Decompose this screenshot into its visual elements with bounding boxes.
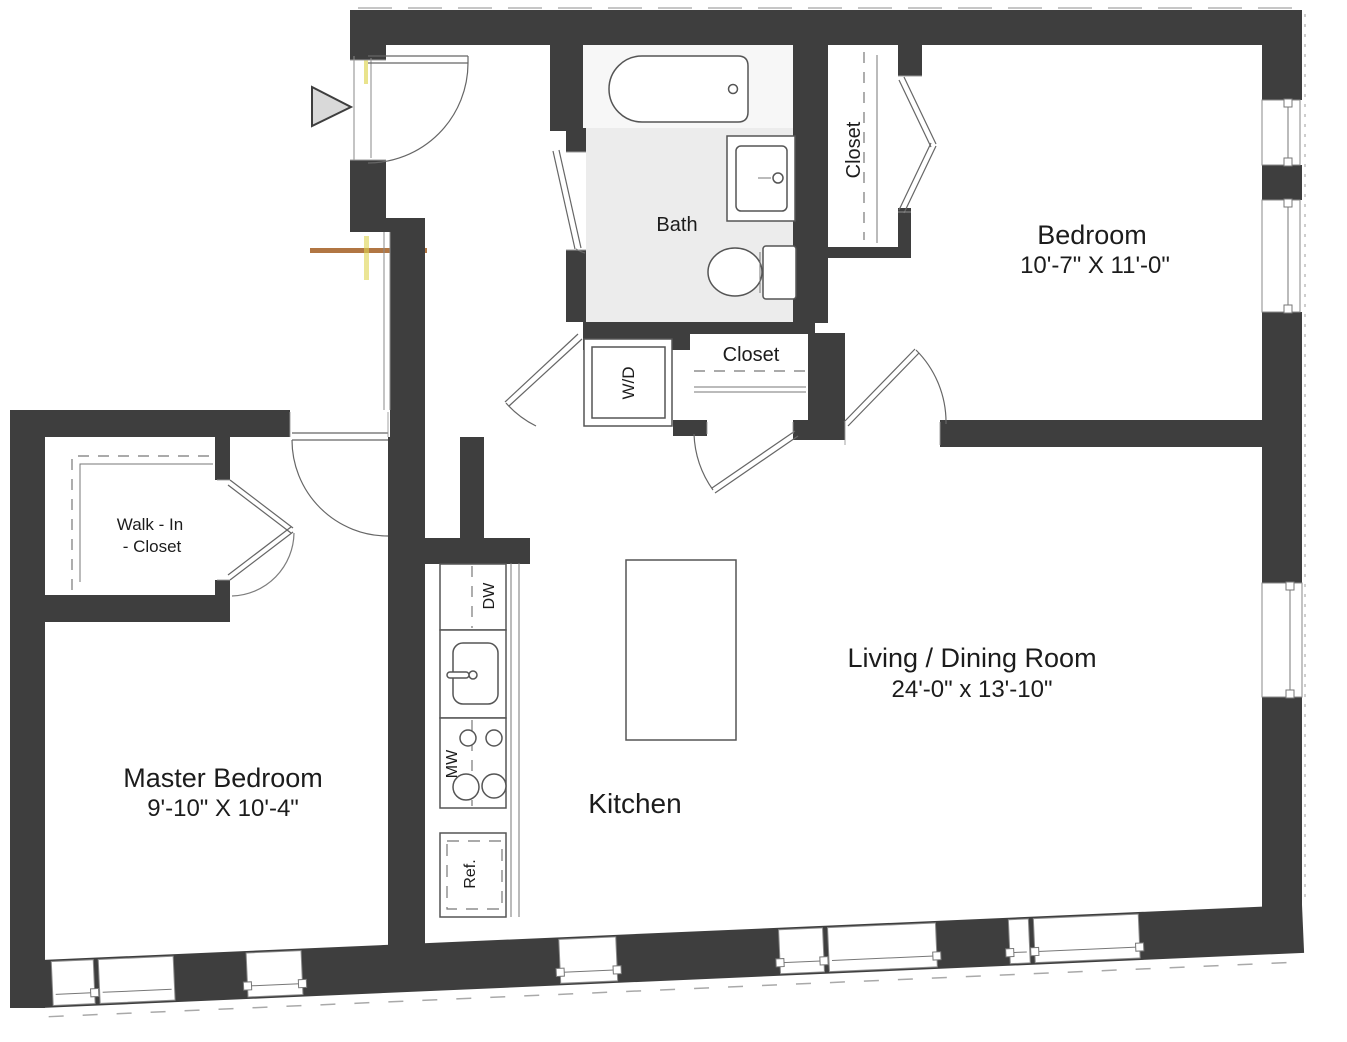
window xyxy=(1262,99,1300,166)
wall-bedcloset-bottom xyxy=(828,247,911,258)
wall-kitchen-top xyxy=(420,538,530,564)
wall-top xyxy=(350,10,1302,45)
washer-dryer: W/D xyxy=(584,339,672,426)
bathtub xyxy=(609,56,748,122)
toilet xyxy=(708,246,796,299)
toilet-tank xyxy=(763,246,796,299)
bath-label: Bath xyxy=(656,214,697,236)
kitchen-faucet xyxy=(469,671,477,679)
wall-kitchen-stub xyxy=(460,437,484,540)
bedroom-label: Bedroom xyxy=(1037,220,1147,250)
bedroom-dims: 10'-7" X 11'-0" xyxy=(1020,252,1170,279)
walk-in-closet-label-line2: - Closet xyxy=(123,537,182,556)
floor-plan-page: W/D DW MW Ref. xyxy=(0,0,1347,1042)
master-bedroom-label: Master Bedroom xyxy=(123,763,323,793)
wall-entry-below-door xyxy=(350,160,386,225)
wall-master-right xyxy=(388,437,425,962)
wall-stub-closet-right xyxy=(793,420,845,440)
wall-bath-right xyxy=(793,43,828,323)
living-dining-label: Living / Dining Room xyxy=(847,643,1096,673)
living-dining-dims: 24'-0" x 13'-10" xyxy=(892,676,1053,703)
kitchen-label: Kitchen xyxy=(588,788,681,819)
walk-in-closet-label-line1: Walk - In xyxy=(117,515,183,534)
master-bedroom-dims: 9'-10" X 10'-4" xyxy=(147,795,299,822)
dishwasher-label: DW xyxy=(481,582,498,610)
bedroom-closet-label: Closet xyxy=(843,121,865,178)
refrigerator-label: Ref. xyxy=(462,859,479,888)
wall-wic-stub-top xyxy=(215,413,230,480)
wall-right-3 xyxy=(1262,312,1302,583)
microwave-label: MW xyxy=(444,749,461,778)
wall-left-outer xyxy=(10,410,45,1008)
wall-right-1 xyxy=(1262,45,1302,100)
wall-tub-alcove-left xyxy=(550,43,583,131)
wall-bedcloset-stub-top xyxy=(898,43,922,76)
hall-closet-label: Closet xyxy=(723,344,780,366)
wall-bedroom-living-divider xyxy=(940,420,1262,447)
wall-corridor-left xyxy=(390,230,425,440)
window xyxy=(1262,199,1300,313)
washer-dryer-label: W/D xyxy=(619,366,638,399)
wall-entry-above-door xyxy=(350,45,386,60)
tub-drain xyxy=(729,85,738,94)
wall-master-top xyxy=(10,410,290,437)
wall-jog xyxy=(350,218,425,232)
wall-hallcloset-right xyxy=(808,333,845,422)
wall-right-2 xyxy=(1262,165,1302,200)
floor-plan-drawing: W/D DW MW Ref. xyxy=(0,0,1347,1042)
toilet-bowl xyxy=(708,248,762,296)
bath-sink-vanity xyxy=(727,136,795,221)
kitchen-sink xyxy=(447,643,498,704)
sink-faucet xyxy=(773,173,783,183)
wall-bath-left-upper xyxy=(566,128,586,152)
wall-bath-left-lower xyxy=(566,250,586,322)
wall-hallcloset-top xyxy=(690,322,815,334)
wall-stub-closet-left xyxy=(673,420,707,436)
wall-wic-bottom xyxy=(28,595,230,622)
kitchen-island xyxy=(626,560,736,740)
kitchen-faucet-handle xyxy=(447,672,469,678)
wall-right-4 xyxy=(1262,697,1302,912)
window xyxy=(1262,582,1302,698)
